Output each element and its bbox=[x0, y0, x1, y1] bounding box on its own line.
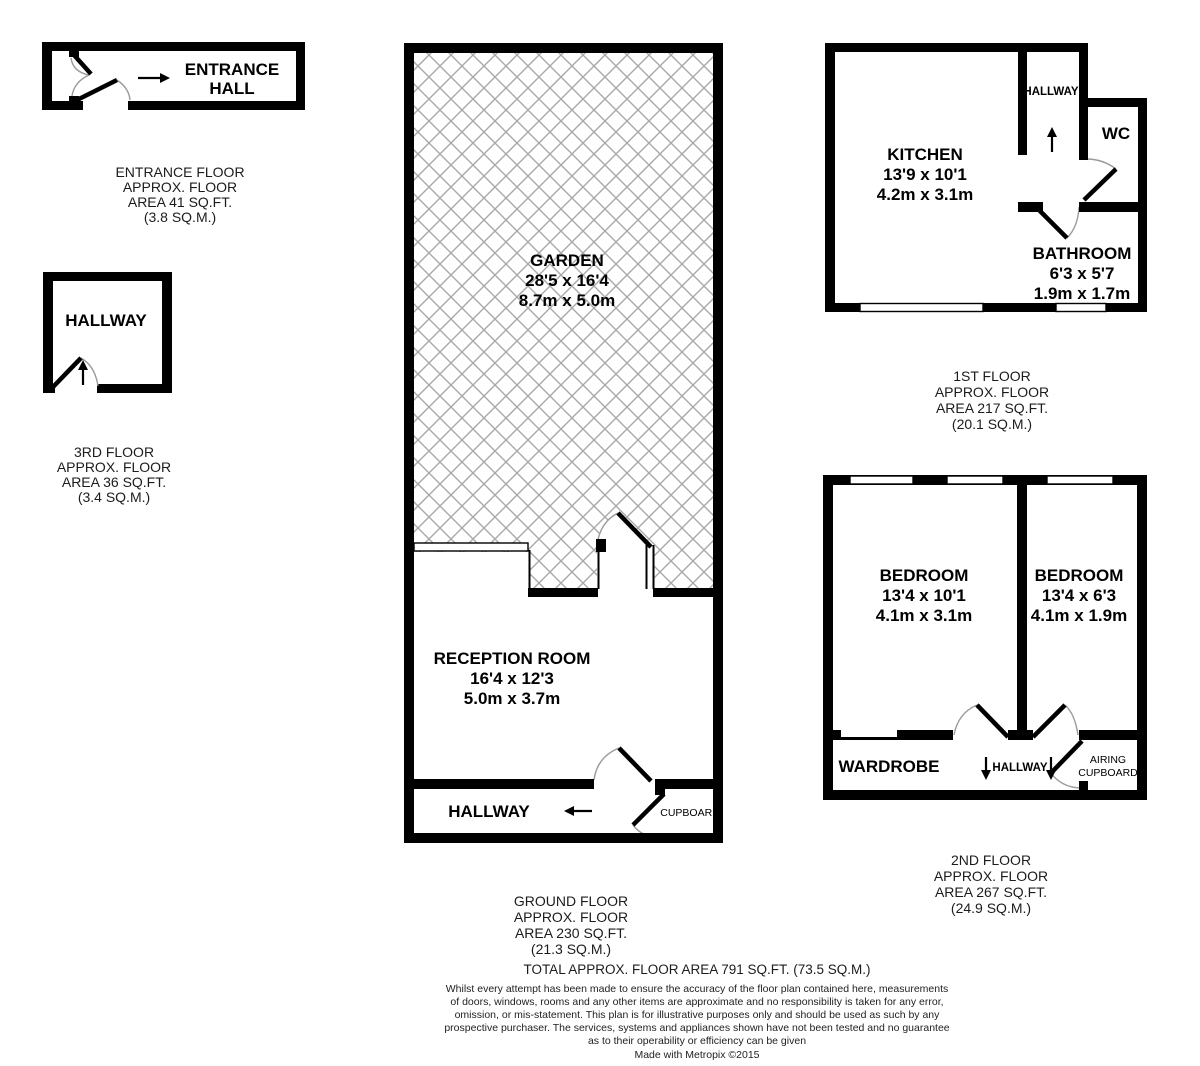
caption-line: AREA 41 SQ.FT. bbox=[128, 194, 232, 210]
room-dims-bathroom-imperial: 6'3 x 5'7 bbox=[1050, 264, 1115, 283]
caption-line: APPROX. FLOOR bbox=[123, 179, 237, 195]
entrance-hall-floorplan: ENTRANCE HALL bbox=[42, 42, 305, 110]
room-label-cupboard: CUPBOARD bbox=[660, 807, 720, 819]
room-label-reception: RECEPTION ROOM bbox=[434, 649, 591, 668]
entrance-floor-caption: ENTRANCE FLOOR APPROX. FLOOR AREA 41 SQ.… bbox=[115, 164, 244, 225]
caption-line: 3RD FLOOR bbox=[74, 444, 154, 460]
room-label-hallway-ground: HALLWAY bbox=[448, 802, 530, 821]
disclaimer-line: Whilst every attempt has been made to en… bbox=[446, 983, 949, 995]
room-label-hallway-1st: HALLWAY bbox=[1023, 86, 1078, 98]
door-swing bbox=[52, 358, 98, 388]
disclaimer-line: prospective purchaser. The services, sys… bbox=[444, 1022, 949, 1034]
credit-text: Made with Metropix ©2015 bbox=[634, 1049, 759, 1061]
room-label-hallway-3rd: HALLWAY bbox=[65, 311, 147, 330]
room-dims-bathroom-metric: 1.9m x 1.7m bbox=[1034, 284, 1130, 303]
caption-line: 2ND FLOOR bbox=[951, 852, 1031, 868]
room-label-airing-cupboard-line1: AIRING bbox=[1090, 754, 1126, 766]
caption-line: ENTRANCE FLOOR bbox=[115, 164, 244, 180]
caption-line: (21.3 SQ.M.) bbox=[531, 941, 611, 957]
window bbox=[860, 304, 983, 312]
window bbox=[1056, 304, 1106, 312]
ground-floor-caption: GROUND FLOOR APPROX. FLOOR AREA 230 SQ.F… bbox=[514, 893, 628, 957]
room-label-hallway-2nd: HALLWAY bbox=[992, 762, 1047, 774]
room-label-entrance-hall-line2: HALL bbox=[209, 79, 254, 98]
room-label-bedroom-right: BEDROOM bbox=[1035, 566, 1124, 585]
third-floor-caption: 3RD FLOOR APPROX. FLOOR AREA 36 SQ.FT. (… bbox=[57, 444, 171, 505]
room-label-garden: GARDEN bbox=[530, 251, 604, 270]
room-dims-bedroom-right-imperial: 13'4 x 6'3 bbox=[1042, 586, 1116, 605]
room-dims-bedroom-left-metric: 4.1m x 3.1m bbox=[876, 606, 972, 625]
second-floor-floorplan: BEDROOM 13'4 x 10'1 4.1m x 3.1m BEDROOM … bbox=[823, 475, 1147, 800]
room-dims-bedroom-right-metric: 4.1m x 1.9m bbox=[1031, 606, 1127, 625]
first-floor-floorplan: KITCHEN 13'9 x 10'1 4.2m x 3.1m HALLWAY … bbox=[825, 43, 1147, 312]
caption-line: APPROX. FLOOR bbox=[514, 909, 628, 925]
floorplan-canvas: ENTRANCE HALL ENTRANCE FLOOR APPROX. FLO… bbox=[0, 0, 1200, 1066]
room-label-bathroom: BATHROOM bbox=[1033, 244, 1132, 263]
window bbox=[414, 543, 528, 551]
room-dims-garden-metric: 8.7m x 5.0m bbox=[519, 291, 615, 310]
second-floor-caption: 2ND FLOOR APPROX. FLOOR AREA 267 SQ.FT. … bbox=[934, 852, 1048, 916]
caption-line: GROUND FLOOR bbox=[514, 893, 628, 909]
caption-line: AREA 230 SQ.FT. bbox=[515, 925, 627, 941]
direction-arrow-icon bbox=[1047, 127, 1057, 152]
room-label-kitchen: KITCHEN bbox=[887, 145, 963, 164]
first-floor-caption: 1ST FLOOR APPROX. FLOOR AREA 217 SQ.FT. … bbox=[935, 368, 1049, 432]
caption-line: AREA 36 SQ.FT. bbox=[62, 474, 166, 490]
direction-arrow-icon bbox=[78, 360, 88, 385]
caption-line: AREA 217 SQ.FT. bbox=[936, 400, 1048, 416]
caption-line: (3.8 SQ.M.) bbox=[144, 209, 216, 225]
caption-line: 1ST FLOOR bbox=[953, 368, 1031, 384]
third-floor-floorplan: HALLWAY bbox=[43, 272, 172, 393]
disclaimer-line: of doors, windows, rooms and any other i… bbox=[450, 996, 943, 1008]
room-label-wc: WC bbox=[1102, 124, 1130, 143]
door-swing bbox=[71, 55, 130, 100]
footer: TOTAL APPROX. FLOOR AREA 791 SQ.FT. (73.… bbox=[444, 962, 949, 1061]
room-dims-garden-imperial: 28'5 x 16'4 bbox=[525, 271, 609, 290]
room-label-airing-cupboard-line2: CUPBOARD bbox=[1078, 767, 1138, 779]
window bbox=[850, 476, 913, 484]
floorplan-page: ENTRANCE HALL ENTRANCE FLOOR APPROX. FLO… bbox=[0, 0, 1200, 1066]
caption-line: (3.4 SQ.M.) bbox=[78, 489, 150, 505]
room-label-bedroom-left: BEDROOM bbox=[880, 566, 969, 585]
caption-line: APPROX. FLOOR bbox=[934, 868, 1048, 884]
direction-arrow-icon bbox=[138, 73, 170, 83]
room-label-wardrobe: WARDROBE bbox=[838, 757, 939, 776]
door-arc bbox=[1051, 773, 1080, 788]
caption-line: (20.1 SQ.M.) bbox=[952, 416, 1032, 432]
caption-line: APPROX. FLOOR bbox=[57, 459, 171, 475]
garden-hatch bbox=[414, 53, 713, 588]
room-dims-bedroom-left-imperial: 13'4 x 10'1 bbox=[882, 586, 966, 605]
room-dims-reception-metric: 5.0m x 3.7m bbox=[464, 689, 560, 708]
room-dims-reception-imperial: 16'4 x 12'3 bbox=[470, 669, 554, 688]
room-dims-kitchen-imperial: 13'9 x 10'1 bbox=[883, 165, 967, 184]
direction-arrow-icon bbox=[981, 757, 991, 780]
caption-line: APPROX. FLOOR bbox=[935, 384, 1049, 400]
disclaimer-line: as to their operability or efficiency ca… bbox=[588, 1035, 806, 1047]
total-area-text: TOTAL APPROX. FLOOR AREA 791 SQ.FT. (73.… bbox=[523, 962, 870, 977]
ground-floor-floorplan: GARDEN 28'5 x 16'4 8.7m x 5.0m RECEPTION… bbox=[404, 43, 723, 843]
walls bbox=[823, 475, 1147, 800]
caption-line: AREA 267 SQ.FT. bbox=[935, 884, 1047, 900]
disclaimer-line: omission, or mis-statement. This plan is… bbox=[455, 1009, 941, 1021]
room-dims-kitchen-metric: 4.2m x 3.1m bbox=[877, 185, 973, 204]
caption-line: (24.9 SQ.M.) bbox=[951, 900, 1031, 916]
room-label-entrance-hall-line1: ENTRANCE bbox=[185, 60, 279, 79]
window bbox=[947, 476, 1003, 484]
window bbox=[1047, 476, 1113, 484]
direction-arrow-icon bbox=[564, 806, 592, 816]
